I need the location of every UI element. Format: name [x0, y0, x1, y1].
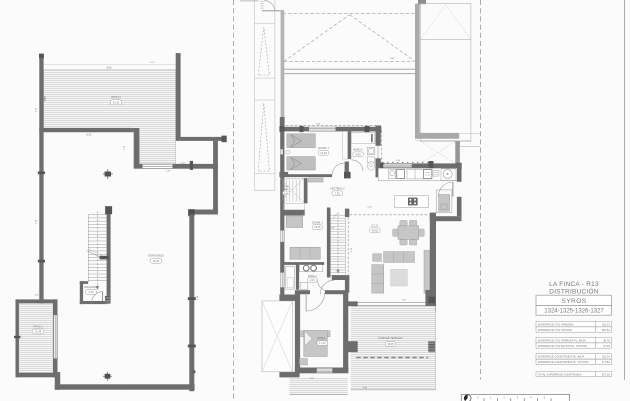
svg-text:DISTRIBUCIÓN: DISTRIBUCIÓN: [549, 287, 598, 296]
svg-text:36.78: 36.78: [603, 338, 610, 342]
svg-text:171.82: 171.82: [602, 360, 611, 364]
svg-text:9.40: 9.40: [362, 386, 367, 389]
svg-text:36.05: 36.05: [387, 342, 394, 346]
svg-text:PATIO 1: PATIO 1: [33, 324, 43, 328]
svg-text:67.38: 67.38: [603, 344, 610, 348]
svg-text:VESTÍBULO: VESTÍBULO: [330, 186, 345, 190]
svg-text:135.24: 135.24: [602, 355, 611, 359]
svg-text:48.55: 48.55: [372, 228, 379, 232]
svg-text:SYROS: SYROS: [561, 298, 586, 305]
svg-text:11.88: 11.88: [35, 330, 42, 334]
svg-text:BAJA: BAJA: [283, 188, 289, 191]
svg-text:SUPERFICIE CONSTRUIDA PL. BAJA: SUPERFICIE CONSTRUIDA PL. BAJA: [538, 355, 585, 359]
svg-text:48.35: 48.35: [153, 259, 160, 263]
svg-text:8.50: 8.50: [107, 67, 112, 70]
svg-text:6.05: 6.05: [87, 133, 92, 136]
svg-text:1324-1325-1326-1327: 1324-1325-1326-1327: [544, 309, 604, 315]
svg-text:105.23: 105.23: [602, 322, 611, 326]
svg-text:LA FINCA - R13: LA FINCA - R13: [549, 281, 599, 288]
svg-text:307.06: 307.06: [602, 372, 611, 376]
svg-text:TOTAL SUPERFICIE CONSTRUIDA: TOTAL SUPERFICIE CONSTRUIDA: [538, 372, 582, 376]
svg-text:4.60: 4.60: [88, 290, 94, 294]
svg-text:DISPONIBLE: DISPONIBLE: [148, 253, 164, 257]
svg-text:12.20: 12.20: [320, 151, 327, 155]
svg-text:34.30: 34.30: [113, 100, 120, 104]
svg-text:SUPERFICIE ÚTIL TERRAZA PL. BA: SUPERFICIE ÚTIL TERRAZA PL. BAJA: [538, 338, 586, 342]
svg-text:PORCHE TERRAZA: PORCHE TERRAZA: [379, 336, 403, 340]
svg-text:ESCALERA: ESCALERA: [84, 286, 98, 289]
svg-text:2.45: 2.45: [310, 279, 315, 282]
svg-text:10.35: 10.35: [314, 225, 321, 229]
svg-text:7.65: 7.65: [335, 191, 341, 195]
svg-text:DORM. 1: DORM. 1: [317, 336, 328, 340]
svg-text:BAÑO 2: BAÑO 2: [308, 275, 317, 278]
svg-text:4.80: 4.80: [355, 152, 361, 156]
svg-text:DORM. 3: DORM. 3: [312, 220, 323, 224]
svg-text:SUPERFICIE ÚTIL VIVIENDA: SUPERFICIE ÚTIL VIVIENDA: [538, 322, 574, 326]
svg-text:ESCAL.: ESCAL.: [282, 185, 290, 188]
svg-text:8.91: 8.91: [120, 384, 125, 387]
svg-text:17.40: 17.40: [319, 341, 326, 345]
svg-text:DORM. 2: DORM. 2: [318, 146, 329, 150]
svg-text:PATIO 2: PATIO 2: [111, 95, 121, 99]
svg-text:S.C.A.: S.C.A.: [371, 223, 379, 227]
svg-text:150.62: 150.62: [602, 328, 611, 332]
